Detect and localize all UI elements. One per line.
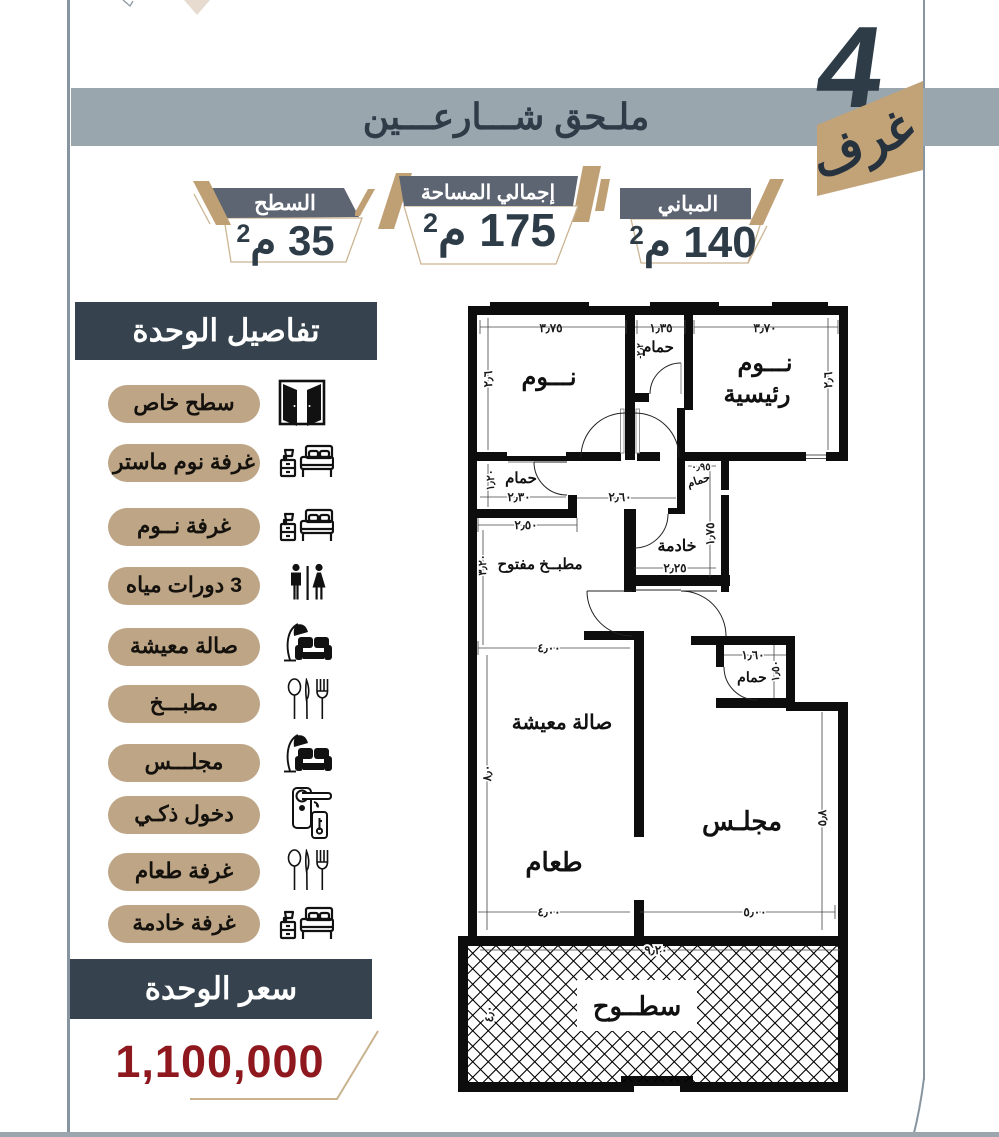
svg-text:٣٫٢٠: ٣٫٢٠ xyxy=(477,554,489,575)
svg-text:-٢٫٢: -٢٫٢ xyxy=(635,343,645,359)
svg-text:رئيسية: رئيسية xyxy=(723,381,790,409)
svg-text:١٫٥٠: ١٫٥٠ xyxy=(770,660,782,681)
svg-text:٢٫٦: ٢٫٦ xyxy=(481,370,495,387)
svg-text:٢٫٦: ٢٫٦ xyxy=(821,371,835,388)
svg-text:نـــوم: نـــوم xyxy=(521,364,576,392)
svg-text:حمام: حمام xyxy=(642,339,674,356)
svg-text:مجلـس: مجلـس xyxy=(702,806,782,837)
svg-text:السطح: السطح xyxy=(254,192,316,216)
svg-text:٩٫٢٠: ٩٫٢٠ xyxy=(644,943,667,957)
svg-text:حمام: حمام xyxy=(505,470,537,487)
svg-text:خادمة: خادمة xyxy=(657,538,696,555)
svg-text:٢٫٦٠: ٢٫٦٠ xyxy=(608,490,631,504)
svg-text:حمام: حمام xyxy=(686,472,712,491)
svg-text:١٫٧٥: ١٫٧٥ xyxy=(703,522,717,545)
svg-text:طعام: طعام xyxy=(525,847,582,878)
svg-text:٤٫٠٠: ٤٫٠٠ xyxy=(537,641,560,655)
svg-text:١٫٢٠: ١٫٢٠ xyxy=(485,469,497,490)
svg-text:٤٫٠: ٤٫٠ xyxy=(482,1006,496,1023)
svg-text:٨٫٠: ٨٫٠ xyxy=(480,765,494,783)
svg-text:المباني: المباني xyxy=(658,193,718,217)
svg-text:٢٫٥٠: ٢٫٥٠ xyxy=(514,518,537,532)
svg-text:١٫٦٠: ١٫٦٠ xyxy=(741,648,764,662)
svg-text:إجمالي المساحة: إجمالي المساحة xyxy=(421,182,555,205)
svg-text:٤٫٠٠: ٤٫٠٠ xyxy=(537,905,560,919)
svg-text:حمام: حمام xyxy=(737,669,767,686)
svg-text:٥٫٨: ٥٫٨ xyxy=(815,809,829,826)
svg-text:سطــوح: سطــوح xyxy=(593,991,682,1022)
svg-text:٣٫٧٠: ٣٫٧٠ xyxy=(753,321,776,335)
svg-text:٥٫٠٠: ٥٫٠٠ xyxy=(743,905,766,919)
svg-text:٢٫٣٠: ٢٫٣٠ xyxy=(507,490,530,504)
svg-text:صالة معيشة: صالة معيشة xyxy=(512,712,612,734)
svg-text:٣٫٧٥: ٣٫٧٥ xyxy=(539,321,562,335)
svg-text:نـــوم: نـــوم xyxy=(737,350,792,378)
svg-text:١٫٣٥: ١٫٣٥ xyxy=(649,321,672,335)
svg-text:٢٫٢٥: ٢٫٢٥ xyxy=(663,561,686,575)
svg-text:مطبــخ مفتوح: مطبــخ مفتوح xyxy=(497,556,582,573)
